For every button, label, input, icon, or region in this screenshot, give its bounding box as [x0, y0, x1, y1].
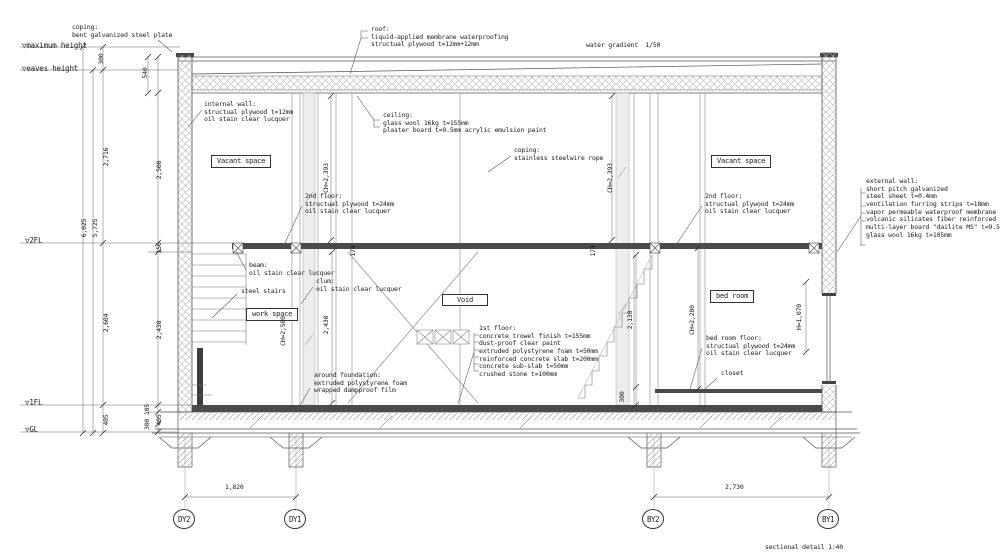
note-external-wall: external wall: short pitch galvanized st… [866, 178, 1000, 239]
room-bed-room: bed room [710, 290, 754, 303]
grid-label-dy2: DY2 [178, 515, 190, 524]
grid-label-by2: BY2 [647, 515, 659, 524]
note-1st-floor: 1st floor: concrete trowel finish t=155m… [479, 325, 598, 379]
dim-2730: 2,730 [725, 483, 744, 491]
dim-ch2393-left: CH=2,393 [322, 163, 330, 193]
note-2nd-floor-right: 2nd floor: structual plywood t=24mm oil … [705, 193, 794, 216]
dim-405-inner: 405 [155, 414, 163, 425]
note-steel-stairs: steel stairs [241, 288, 286, 296]
roof-parapet [176, 53, 838, 93]
note-coping-plate: coping: bent galvanized steel plate [72, 24, 172, 39]
dim-174-right: 174 [589, 245, 597, 256]
dim-2130: 2,130 [626, 311, 634, 330]
dim-ch2393-right: CH=2,393 [606, 163, 614, 193]
grid-label-dy1: DY1 [289, 515, 301, 524]
note-clum: clum: oil stain clear lucquer [316, 278, 401, 293]
foundation [152, 412, 860, 467]
section-linework [0, 0, 1000, 557]
dim-405-left: 405 [102, 414, 110, 425]
dim-h1070: H=1,070 [795, 304, 803, 330]
grid-label-by1: BY1 [822, 515, 834, 524]
dim-ch2580: CH=2,580 [279, 316, 287, 346]
dim-2500: 2,500 [155, 161, 163, 180]
note-2nd-floor-left: 2nd floor: structual plywood t=24mm oil … [305, 193, 394, 216]
dim-2430-left: 2,430 [155, 321, 163, 340]
dim-150: 150 [155, 242, 163, 253]
note-ceiling: ceiling: glass wool 16kg t=155mm plaster… [383, 112, 546, 135]
dim-540: 540 [141, 67, 149, 78]
note-around-foundation: around foundation: extruded polystyrene … [314, 372, 407, 395]
dim-5725: 5,725 [91, 219, 99, 238]
note-internal-wall: internal wall: structual plywood t=12mm … [204, 101, 293, 124]
dim-2604: 2,604 [102, 314, 110, 333]
dim-2430-clum: 2,430 [322, 316, 330, 335]
note-roof: roof: liquid-applied membrane waterproof… [371, 26, 508, 49]
steel-stairs-left [192, 254, 246, 405]
room-vacant-space-left: Vacant space [211, 155, 271, 168]
dim-300-parapet: 300 [97, 53, 105, 64]
grid-bubble-by2: BY2 [642, 509, 664, 529]
grid-bubble-by1: BY1 [817, 509, 839, 529]
level-eaves-height: ▽eaves height [22, 64, 78, 73]
drawing-title: sectional detail 1:40 [765, 543, 843, 551]
dim-174-left: 174 [349, 245, 357, 256]
note-coping-wire: coping: stainless steelwire rope [514, 147, 603, 162]
note-water-gradient: water gradient 1/50 [586, 42, 660, 50]
sectional-detail-drawing: ▽maximum height ▽eaves height ▽2FL ▽1FL … [0, 0, 1000, 557]
dim-ch2280: CH=2,280 [688, 305, 696, 335]
level-1fl: ▽1FL [25, 398, 42, 407]
grid-lines [185, 437, 829, 508]
room-void: Void [442, 294, 488, 306]
grid-bubble-dy2: DY2 [173, 509, 195, 529]
note-closet: closet [721, 370, 743, 378]
level-2fl: ▽2FL [25, 236, 42, 245]
dim-6025: 6,025 [80, 219, 88, 238]
note-beam: beam: oil stain clear lucquer [249, 262, 334, 277]
dim-2716: 2,716 [102, 148, 110, 167]
dim-300-bedfloor: 300 [618, 391, 626, 402]
dim-300-105: 300 105 [143, 404, 151, 430]
room-work-space: work space [246, 308, 298, 321]
dim-1820: 1,820 [225, 483, 244, 491]
room-vacant-space-right: Vacant space [711, 155, 771, 168]
level-gl: ▽GL [25, 425, 38, 434]
grid-bubble-dy1: DY1 [284, 509, 306, 529]
note-bedroom-floor: bed room floor: structual plywood t=24mm… [706, 335, 795, 358]
level-maximum-height: ▽maximum height [22, 41, 87, 50]
